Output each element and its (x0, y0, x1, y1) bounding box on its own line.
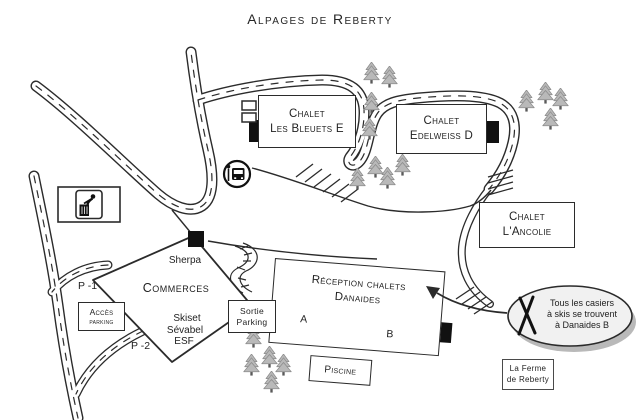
bubble-note: Tous les casiers à skis se trouvent à Da… (531, 298, 633, 330)
chalet-edelweiss-line1: Chalet (424, 114, 460, 129)
bubble-line2: à skis se trouvent (531, 309, 633, 320)
commerce-esf-label: ESF (174, 336, 193, 347)
commerce-sherpa-label: Sherpa (169, 255, 201, 266)
piscine-label: Piscine (324, 363, 357, 378)
trash-icon (58, 187, 120, 222)
chalet-les-bleuets-line2: Les Bleuets E (270, 122, 344, 137)
ferme-line1: La Ferme (510, 364, 547, 374)
chalet-ancolie-line2: L'Ancolie (503, 225, 552, 240)
chalet-edelweiss-line2: Edelweiss D (410, 129, 473, 144)
commerce-skiset-label: Skiset (173, 313, 200, 324)
bubble-line1: Tous les casiers (531, 298, 633, 309)
acces-line1: Accès (90, 307, 114, 318)
piscine-building: Piscine (308, 355, 372, 386)
commerce-title-label: Commerces (143, 281, 210, 295)
parking-level1-label: P -1 (78, 280, 97, 292)
reception-danaides: Réception chalets Danaides A B Piscine (268, 258, 445, 356)
sortie-line1: Sortie (240, 306, 264, 317)
parking-level2-label: P -2 (131, 340, 150, 352)
chalet-ancolie-line1: Chalet (509, 210, 545, 225)
resort-map: Alpages de Reberty Chalet Les Bleuets E … (0, 0, 640, 420)
ferme-line2: de Reberty (507, 375, 549, 385)
bubble-line3: à Danaides B (531, 320, 633, 331)
commerce-sevabel-label: Sévabel (167, 325, 203, 336)
acces-line2: parking (89, 317, 113, 326)
chalet-les-bleuets-line1: Chalet (289, 107, 325, 122)
chalet-edelweiss: Chalet Edelweiss D (396, 104, 487, 154)
page-title: Alpages de Reberty (0, 11, 640, 27)
bus-stop-icon (224, 161, 250, 187)
sortie-line2: Parking (237, 317, 268, 328)
chalet-les-bleuets: Chalet Les Bleuets E (258, 95, 356, 148)
ferme-reberty: La Ferme de Reberty (502, 359, 554, 390)
unit-a-label: A (300, 313, 308, 327)
chalet-ancolie: Chalet L'Ancolie (479, 202, 575, 248)
sortie-parking-sign: Sortie Parking (228, 300, 276, 333)
unit-b-label: B (386, 328, 394, 342)
acces-parking-sign: Accès parking (78, 302, 125, 331)
reception-entrance (440, 322, 453, 343)
reception-line2: Danaides (334, 290, 381, 308)
